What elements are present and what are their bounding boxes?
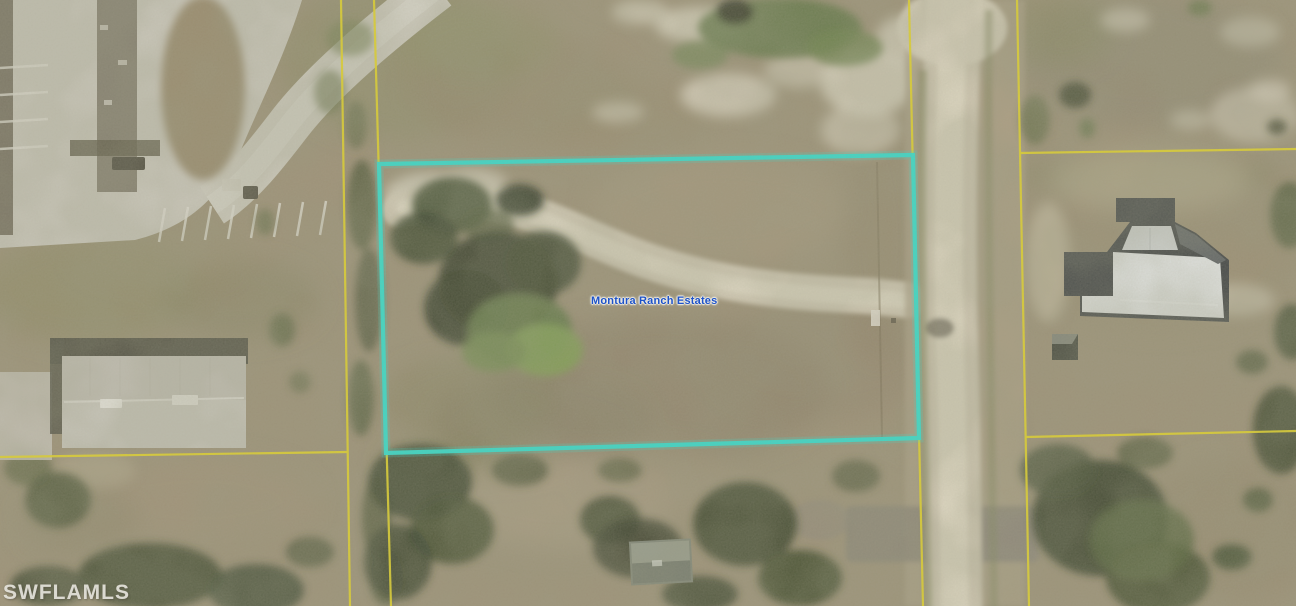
mls-watermark: SWFLAMLS [3, 581, 130, 605]
aerial-property-photo: Montura Ranch Estates SWFLAMLS [0, 0, 1296, 606]
parcel-label: Montura Ranch Estates [591, 295, 717, 307]
